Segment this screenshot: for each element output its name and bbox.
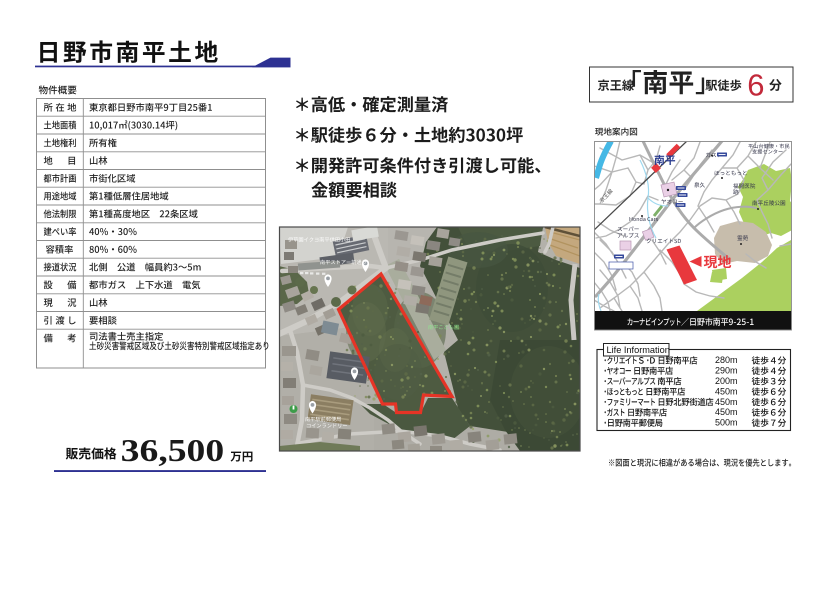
svg-text:Life Information: Life Information	[607, 345, 670, 355]
svg-text:500m: 500m	[715, 418, 738, 428]
svg-text:450m: 450m	[715, 407, 738, 417]
svg-text:6: 6	[747, 68, 764, 103]
svg-text:290m: 290m	[715, 366, 738, 376]
svg-text:36,500: 36,500	[121, 433, 224, 468]
svg-text:280m: 280m	[715, 355, 738, 365]
svg-text:450m: 450m	[715, 386, 738, 396]
svg-text:450m: 450m	[715, 397, 738, 407]
svg-text:200m: 200m	[715, 376, 738, 386]
